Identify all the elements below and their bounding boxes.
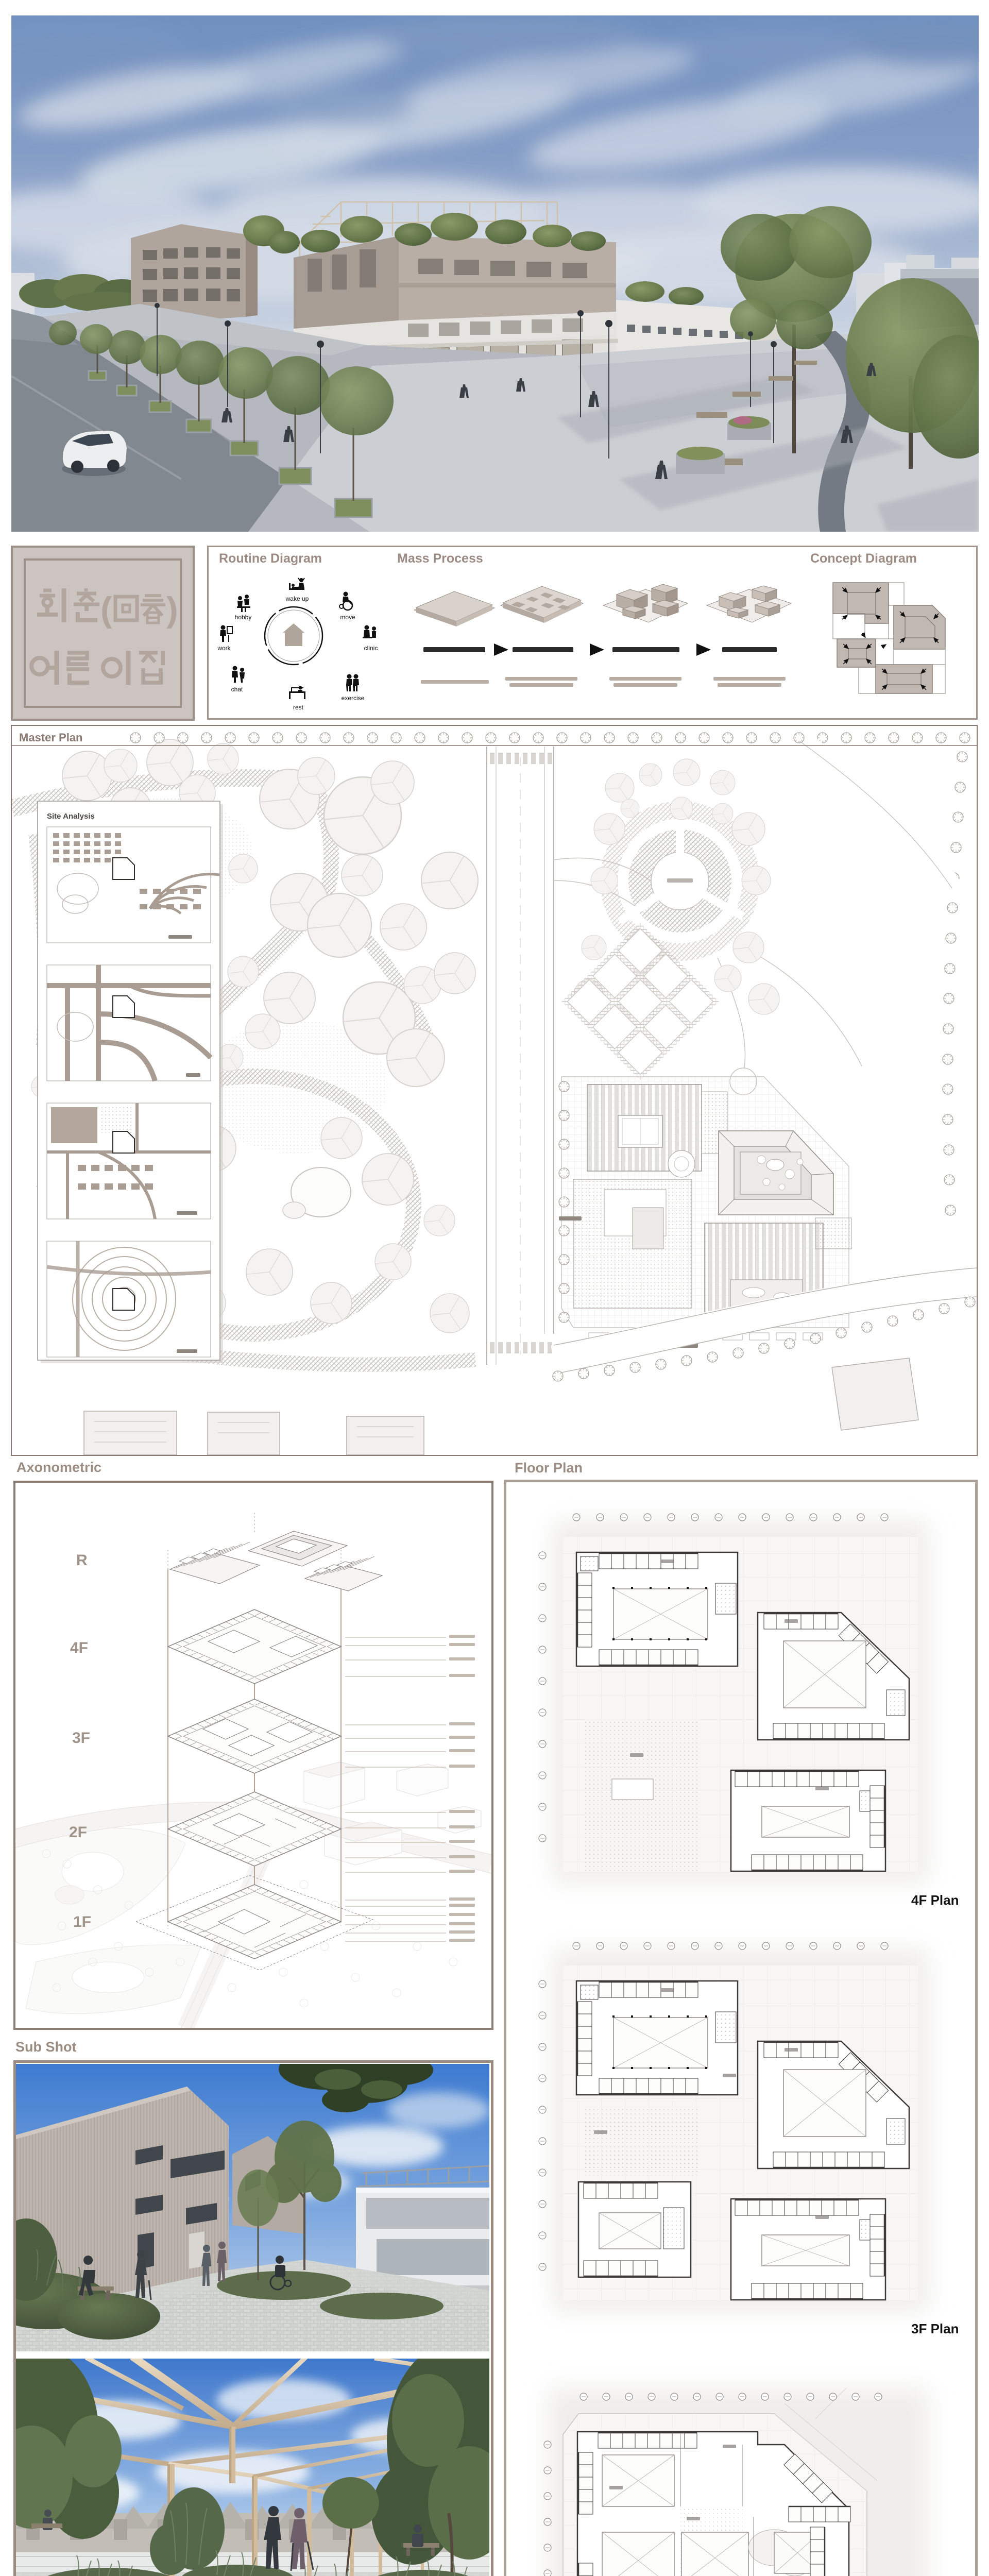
svg-text:rest: rest	[293, 704, 304, 711]
svg-text:): )	[166, 590, 178, 629]
svg-text:chat: chat	[231, 686, 243, 693]
svg-text:4F: 4F	[70, 1639, 88, 1656]
svg-text:3F: 3F	[72, 1730, 90, 1747]
svg-text:Concept Diagram: Concept Diagram	[810, 551, 917, 566]
svg-text:move: move	[340, 614, 355, 621]
svg-text:wake up: wake up	[285, 595, 309, 602]
svg-text:3F Plan: 3F Plan	[911, 2321, 959, 2336]
svg-text:Mass Process: Mass Process	[397, 551, 483, 566]
svg-text:exercise: exercise	[342, 694, 365, 702]
svg-text:(: (	[100, 590, 112, 629]
svg-text:work: work	[217, 645, 231, 652]
svg-text:1F: 1F	[73, 1913, 91, 1930]
svg-text:R: R	[76, 1552, 88, 1569]
svg-text:2F: 2F	[69, 1824, 87, 1841]
svg-text:Routine Diagram: Routine Diagram	[219, 551, 322, 566]
svg-text:clinic: clinic	[364, 645, 378, 652]
svg-text:hobby: hobby	[235, 614, 252, 621]
svg-text:Site Analysis: Site Analysis	[47, 812, 95, 821]
svg-text:4F Plan: 4F Plan	[911, 1892, 959, 1908]
svg-text:Master Plan: Master Plan	[19, 731, 83, 744]
